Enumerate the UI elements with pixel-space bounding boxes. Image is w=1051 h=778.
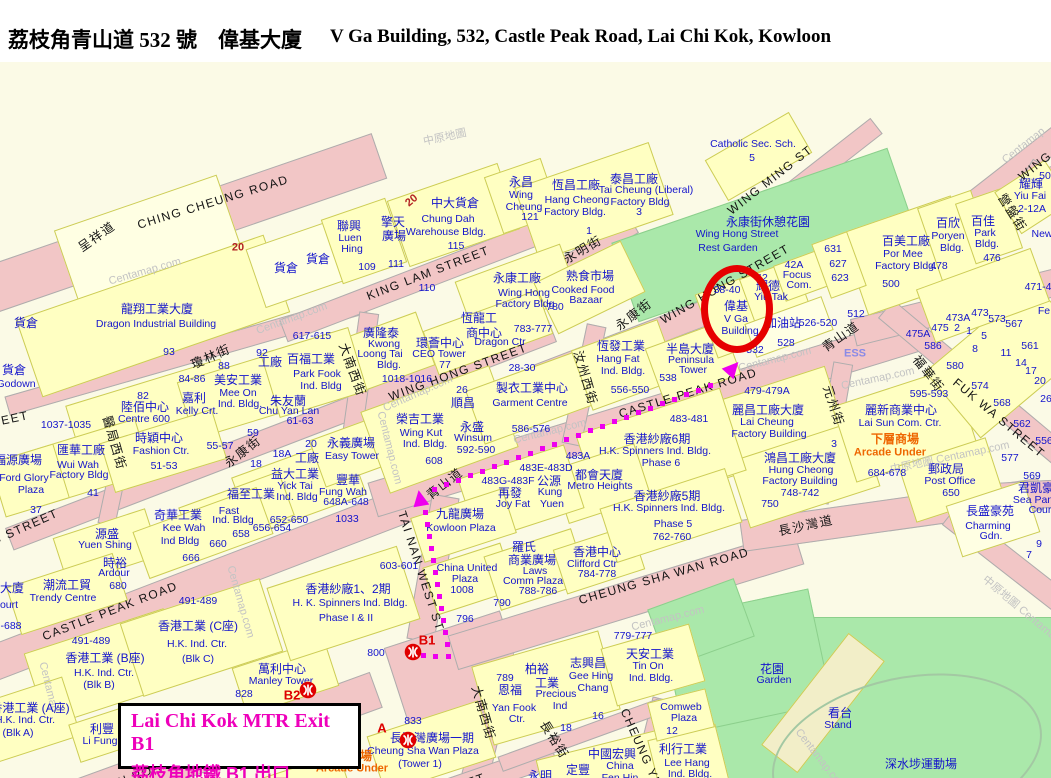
map-label: 595-593	[910, 389, 949, 400]
map-label: Tai Cheung (Liberal)	[599, 185, 694, 196]
map-label: 恆昌工廠	[552, 179, 600, 191]
map-label: 君凱豪	[1018, 482, 1051, 494]
map-label: 益大工業	[271, 468, 319, 480]
map-label: 大廈	[0, 582, 24, 594]
map-label: 18	[250, 459, 262, 470]
map-label: 586-576	[512, 424, 551, 435]
map-label: Tower	[679, 365, 707, 376]
route-dot	[427, 534, 432, 539]
map-label: CEO Tower	[412, 349, 466, 360]
map-label: 750	[761, 499, 779, 510]
map-label: 麗新商業中心	[865, 404, 937, 416]
map-label: 115	[448, 241, 465, 252]
map-label: 55-57	[207, 441, 234, 452]
map-label: 百欣	[936, 217, 960, 229]
map-label: 109	[358, 262, 376, 273]
map-label: 567	[1005, 319, 1023, 330]
map-label: Ind. Bldg	[212, 515, 253, 526]
map-label: 562	[1013, 419, 1031, 430]
map-label: 748-742	[781, 488, 820, 499]
map-label: H.K. Spinners Ind. Bldg.	[613, 503, 725, 514]
map-label: 580	[946, 361, 964, 372]
map-label: 萬利中心	[258, 663, 306, 675]
map-label: 483E-483D	[519, 463, 572, 474]
map-label: 陸佰中心	[121, 401, 169, 413]
map-label: Kee Wah	[163, 523, 206, 534]
map-label: Warehouse Bldg.	[406, 227, 486, 238]
map-label: 603-601	[380, 561, 419, 572]
map-label: 福源廣場	[0, 454, 42, 466]
route-dot	[432, 487, 437, 492]
map-label: H.K. Ind. Ctr.	[167, 639, 227, 650]
map-label: Phase I & II	[319, 613, 373, 624]
map-label: Factory Bldg	[496, 299, 555, 310]
route-dot	[660, 401, 665, 406]
map-label: Catholic Sec. Sch.	[710, 139, 796, 150]
map-label: 650	[942, 488, 960, 499]
route-dot	[456, 478, 461, 483]
map-label: Wing Hong	[498, 288, 550, 299]
map-label: 福至工業	[227, 488, 275, 500]
map-label: Wing Hong Street	[696, 229, 779, 240]
map-label: 工廠	[295, 452, 319, 464]
map-label: 下層商場	[871, 433, 919, 445]
route-dot	[435, 582, 440, 587]
map-label: 貨倉	[306, 253, 330, 265]
map-label: 833	[404, 716, 422, 727]
map-label: Phase 5	[654, 519, 693, 530]
map-label: 680	[109, 581, 127, 592]
map-label: Luen	[338, 233, 361, 244]
map-label: 37	[30, 505, 42, 516]
route-dot	[431, 558, 436, 563]
map-label: 623	[831, 273, 849, 284]
map-label: Yuen Shing	[78, 540, 132, 551]
route-dot	[528, 451, 533, 456]
map-label: 561	[1021, 341, 1039, 352]
map-label: REET	[0, 409, 30, 429]
route-dot	[552, 442, 557, 447]
map-label: 84-86	[179, 374, 206, 385]
map-label: Cour	[1029, 505, 1051, 516]
map-label: Ind. Bldg.	[601, 366, 645, 377]
map-label: Garment Centre	[492, 398, 567, 409]
map-label: 5	[749, 153, 755, 164]
map-label: 香港工業 (A座)	[0, 702, 70, 714]
map-label: Mee On	[219, 388, 256, 399]
route-dot	[441, 618, 446, 623]
map-label: 貨倉	[14, 317, 38, 329]
route-dot	[445, 642, 450, 647]
map-label: Cheung Sha Wan Plaza	[367, 746, 479, 757]
map-label: 61-63	[287, 416, 314, 427]
map-label: Chung Dah	[421, 214, 474, 225]
map-label: 473	[971, 308, 989, 319]
map-label: 潮流工貿	[43, 579, 91, 591]
map-label: 479-479A	[744, 386, 790, 397]
map-label: Lai Sun Com. Ctr.	[859, 418, 942, 429]
map-label: Bldg.	[940, 243, 964, 254]
map-label: 652-650	[270, 515, 309, 526]
map-label: 784-778	[578, 569, 617, 580]
map-label: 工廠	[258, 356, 282, 368]
map-label: H.K. Spinners Ind. Bldg.	[599, 446, 711, 457]
map-label: Ardour	[98, 568, 130, 579]
map-label: 26	[456, 385, 468, 396]
map-label: 77	[439, 360, 451, 371]
map-label: 93	[163, 347, 175, 358]
map-label: 香港工業 (B座)	[65, 652, 144, 664]
map-label: 豐華	[336, 474, 360, 486]
map-label: Factory Building	[762, 476, 837, 487]
page-title-chinese: 荔枝角青山道 532 號 偉基大廈	[8, 24, 302, 54]
map-label: 美安工業	[214, 374, 262, 386]
map-label: Poryen	[931, 231, 964, 242]
route-dot	[480, 469, 485, 474]
map-label: 512	[847, 309, 865, 320]
map-label: 783-777	[514, 324, 553, 335]
map-label: 568	[993, 398, 1011, 409]
map-label: 永康街休憩花園	[726, 216, 810, 228]
map-label: 中原地圖	[422, 128, 467, 148]
map-label: -688	[0, 621, 21, 632]
map-label: 天安工業	[626, 648, 674, 660]
map-label: Plaza	[18, 485, 44, 496]
map-label: 788-786	[519, 586, 558, 597]
map-label: 時穎中心	[135, 432, 183, 444]
map-label: Fe	[1038, 306, 1050, 317]
map-label: 617-615	[293, 331, 332, 342]
map-label: 永康工廠	[493, 272, 541, 284]
map-label: Bldg.	[975, 239, 999, 250]
map-label: 800	[367, 648, 385, 659]
map-label: 7	[1026, 550, 1032, 561]
map-label: 香港中心	[573, 546, 621, 558]
route-dot	[423, 510, 428, 515]
map-label: Kelly Crt.	[176, 406, 219, 417]
map-label: 貨倉	[274, 262, 298, 274]
route-dot	[564, 437, 569, 442]
map-label: 16	[592, 711, 604, 722]
map-label: 3	[831, 439, 837, 450]
map-label: Ind. Bldg.	[218, 399, 262, 410]
map-label: 790	[493, 598, 511, 609]
map-label: 491-489	[72, 636, 111, 647]
map-label: 志興昌	[570, 657, 606, 669]
map-label: 香港工業 (C座)	[158, 620, 238, 632]
map-label: Yan Fook	[492, 703, 536, 714]
map-label: Lai Cheung	[740, 417, 794, 428]
map-label: 中大貨倉	[431, 197, 479, 209]
map-label: 483A	[566, 451, 591, 462]
map-label: 110	[419, 283, 436, 294]
route-dot	[624, 415, 629, 420]
map-label: Factory Bldg.	[875, 261, 937, 272]
map-label: Fen Hin	[602, 773, 639, 778]
route-dot	[425, 522, 430, 527]
map-label: 1037-1035	[41, 420, 91, 431]
route-dot	[439, 606, 444, 611]
callout-line-english: Lai Chi Kok MTR Exit B1	[131, 710, 358, 756]
map-label: 41	[87, 488, 99, 499]
map-label: 廣場	[382, 230, 406, 242]
map-label: 龍翔工業大廈	[121, 303, 193, 315]
map-label: Phase 6	[642, 458, 681, 469]
map-label: 貨倉	[2, 364, 26, 376]
map-label: 嘉利	[182, 392, 206, 404]
map-label: 556	[1035, 436, 1051, 447]
map-label: 2-12A	[1018, 204, 1046, 215]
map-label: Loong Tai	[357, 349, 402, 360]
map-label: 利豐	[90, 723, 114, 735]
map-label: Metro Heights	[567, 481, 632, 492]
map-label: 684-678	[868, 468, 907, 479]
map-label: 永義廣場	[327, 437, 375, 449]
map-label: Stand	[824, 720, 851, 731]
map-label: Rest Garden	[698, 243, 758, 254]
map-label: 121	[521, 212, 539, 223]
map-label: (Tower 1)	[398, 759, 442, 770]
map-label: Factory Building	[731, 429, 806, 440]
route-dot	[648, 406, 653, 411]
map-label: H.K. Ind. Ctr.	[74, 668, 134, 679]
route-dot	[708, 383, 713, 388]
map-label: 28-30	[509, 363, 536, 374]
map-label: 擎天	[381, 216, 405, 228]
map-label: 柏裕	[525, 663, 549, 675]
map-label: Joy Fat	[496, 499, 530, 510]
map-label: 榮吉工業	[396, 413, 444, 425]
map-label: 111	[388, 259, 404, 270]
route-dot	[443, 630, 448, 635]
map-label: 666	[182, 553, 200, 564]
map-label: Easy Tower	[325, 451, 379, 462]
map-label: 476	[983, 253, 1001, 264]
map-label: Bazaar	[569, 295, 602, 306]
map-label: 1	[966, 326, 972, 337]
map-label: 深水埗運動場	[885, 758, 957, 770]
map-label: 478	[930, 261, 948, 272]
map-label: Ind. Bldg.	[629, 673, 673, 684]
map-label: 796	[456, 614, 474, 625]
map-label: 556-550	[611, 385, 650, 396]
map-label: 恩福	[498, 684, 522, 696]
map-label: Gdn.	[980, 531, 1003, 542]
map-label: Gee Hing	[569, 671, 613, 682]
map-label: Ind. Bldg.	[668, 769, 712, 778]
map-label: Hing	[341, 244, 363, 255]
map-label: Ind. Bldg	[300, 381, 341, 392]
map-label: 香港紗廠1、2期	[305, 583, 390, 595]
map-label: 百福工業	[287, 353, 335, 365]
map-label: 586	[924, 341, 942, 352]
page-title-english: V Ga Building, 532, Castle Peak Road, La…	[330, 26, 831, 48]
map-label: 762-760	[653, 532, 692, 543]
map-label: 九龍廣場	[436, 508, 484, 520]
map-label: 828	[235, 689, 253, 700]
mtr-exit-callout: Lai Chi Kok MTR Exit B1 荔枝角地鐵 B1 出口	[118, 703, 361, 769]
map-label: Plaza	[452, 574, 478, 585]
map-label: 574	[971, 381, 989, 392]
map-label: 1	[586, 226, 592, 237]
map-label: 1008	[450, 585, 473, 596]
map-label: Wing	[509, 190, 533, 201]
route-dot	[588, 428, 593, 433]
map-label: 1033	[335, 514, 358, 525]
map-label: 3	[636, 207, 642, 218]
mtr-exit-label: B1	[419, 633, 436, 648]
map-label: 475	[931, 323, 949, 334]
map-label: Kung	[538, 487, 563, 498]
map-label: 608	[425, 456, 443, 467]
map-label: 5	[981, 331, 987, 342]
map-label: 永明	[528, 770, 552, 778]
map-label: 看台	[828, 707, 852, 719]
map-label: 569	[1023, 471, 1041, 482]
map-label: 百佳	[971, 215, 995, 227]
map-label: Garden	[756, 675, 791, 686]
map-label: 491-489	[179, 596, 218, 607]
map-label: 648A-648	[323, 497, 369, 508]
map-label: 利行工業	[659, 743, 707, 755]
route-dot	[576, 433, 581, 438]
map-label: 526-520	[799, 318, 838, 329]
route-dot	[468, 473, 473, 478]
map-label: Dragon Industrial Building	[96, 319, 216, 330]
map-label: Hung Cheong	[769, 465, 834, 476]
map-label: 9	[1036, 539, 1042, 550]
route-dot	[600, 424, 605, 429]
map-label: Arcade Under	[854, 448, 926, 459]
map-label: 匯華工廠	[57, 444, 105, 456]
map-label: 573	[988, 314, 1006, 325]
map-label: Comweb	[660, 702, 701, 713]
map-label: Bldg.	[377, 360, 401, 371]
callout-line-chinese: 荔枝角地鐵 B1 出口	[131, 760, 358, 778]
map-label: (Blk B)	[83, 680, 115, 691]
map-label: 483G-483F	[481, 476, 534, 487]
map-label: 20	[305, 439, 317, 450]
mtr-station-icon	[399, 731, 417, 754]
map-label: 88	[218, 361, 230, 372]
map-label: 羅氏	[512, 541, 536, 553]
map-label: 百美工廠	[882, 235, 930, 247]
map-label: 658	[232, 529, 250, 540]
map-label: 631	[824, 244, 842, 255]
map-label: 鴻昌工廠大廈	[764, 452, 836, 464]
route-dot	[433, 654, 438, 659]
map-canvas[interactable]: Lai Chi Kok MTR Exit B1 荔枝角地鐵 B1 出口 10 2…	[0, 62, 1051, 778]
route-dot	[444, 482, 449, 487]
map-label: 製衣工業中心	[496, 382, 568, 394]
map-label: 1018-1016	[382, 374, 432, 385]
route-dot	[684, 392, 689, 397]
map-label: Hang Fat	[596, 354, 639, 365]
map-label: 26	[1040, 394, 1051, 405]
map-label: 627	[829, 259, 847, 270]
route-dot	[612, 419, 617, 424]
map-label: 779-777	[614, 631, 653, 642]
map-label: 香港紗廠5期	[634, 490, 701, 502]
route-dot	[437, 594, 442, 599]
map-label: China	[606, 761, 633, 772]
map-label: 恆發工業	[597, 340, 645, 352]
route-dot	[446, 654, 451, 659]
route-dot	[429, 546, 434, 551]
mtr-exit-label: A	[377, 721, 386, 736]
map-label: New	[1031, 229, 1051, 240]
map-label: 660	[209, 539, 227, 550]
map-label: 11	[1001, 348, 1012, 359]
route-dot	[672, 397, 677, 402]
map-label: Ind. Bldg	[276, 492, 317, 503]
map-label: Ford Glory	[0, 473, 49, 484]
map-label: (Blk A)	[3, 728, 34, 739]
map-label: 538	[659, 373, 677, 384]
route-arrow	[411, 489, 430, 508]
map-label: 577	[1001, 453, 1019, 464]
map-label: Chang	[578, 683, 609, 694]
map-label: 528	[777, 338, 795, 349]
map-label: H. K. Spinners Ind. Bldg.	[293, 598, 408, 609]
map-label: 51-53	[151, 461, 178, 472]
map-label: Fashion Ctr.	[133, 446, 190, 457]
map-label: 香港紗廠6期	[624, 433, 691, 445]
map-label: 592-590	[457, 445, 496, 456]
map-label: 18A	[273, 449, 292, 460]
map-label: ESS	[844, 349, 866, 360]
map-label: (Blk C)	[182, 654, 214, 665]
map-label: Por Mee	[883, 249, 923, 260]
route-dot	[433, 570, 438, 575]
map-label: Wing Kut	[400, 428, 443, 439]
map-label: 長盛豪苑	[966, 505, 1014, 517]
map-label: 471-4	[1025, 282, 1051, 293]
map-label: 中國宏興	[588, 748, 636, 760]
map-label: Dragon Ctr	[474, 337, 525, 348]
map-label: Godown	[0, 379, 36, 390]
map-label: Yuen	[540, 499, 564, 510]
map-label: H.K. Ind. Ctr.	[0, 715, 55, 726]
mtr-exit-label: B2	[284, 688, 301, 703]
map-label: 475A	[906, 329, 931, 340]
route-dot	[492, 464, 497, 469]
route-dot	[540, 446, 545, 451]
map-label: 20	[1034, 376, 1046, 387]
map-label: Ind Bldg	[161, 536, 200, 547]
map-label: 18	[560, 723, 572, 734]
map-label: Ctr.	[509, 714, 525, 725]
map-label: 永昌	[509, 176, 533, 188]
map-label: Park Fook	[293, 369, 341, 380]
map-label: 熟食市場	[566, 270, 614, 282]
map-label: Park	[974, 228, 996, 239]
map-label: Yick Tai	[277, 481, 313, 492]
map-label: 順昌	[451, 397, 475, 409]
map-label: 奇華工業	[154, 509, 202, 521]
map-label: 50	[1039, 171, 1051, 182]
route-dot	[516, 455, 521, 460]
map-label: Li Fung	[82, 736, 117, 747]
map-label: Trendy Centre	[30, 593, 97, 604]
map-label: Ind. Bldg.	[403, 439, 447, 450]
map-label: Winsum	[454, 433, 492, 444]
map-label: Hang Cheong	[545, 195, 610, 206]
map-label: 郵政局	[928, 463, 964, 475]
map-label: 麗昌工廠大廈	[732, 404, 804, 416]
map-label: 789	[496, 673, 514, 684]
map-label: Factory Bldg.	[544, 207, 606, 218]
